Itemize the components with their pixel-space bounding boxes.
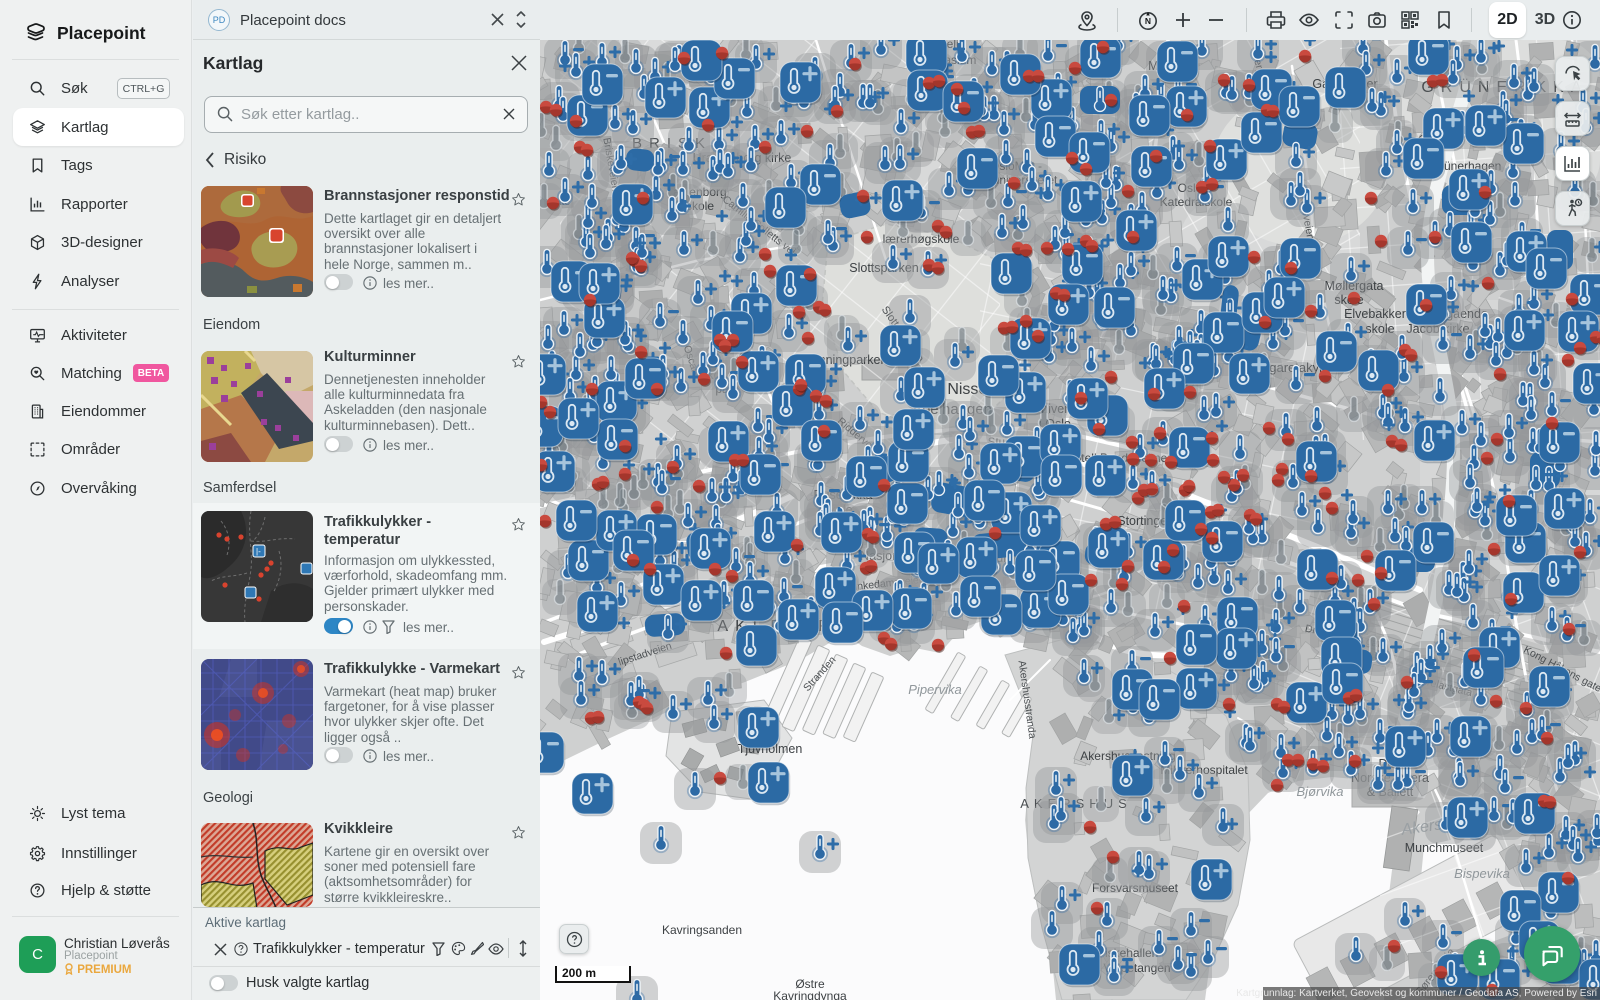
svg-text:Bispevika: Bispevika bbox=[1454, 866, 1510, 881]
svg-text:|-: |- bbox=[256, 547, 261, 556]
svg-text:N: N bbox=[1145, 16, 1151, 26]
svg-text:Kavringsanden: Kavringsanden bbox=[662, 923, 742, 937]
svg-text:Kavringdynga: Kavringdynga bbox=[773, 989, 847, 1000]
svg-text:Pipervika: Pipervika bbox=[908, 682, 961, 697]
